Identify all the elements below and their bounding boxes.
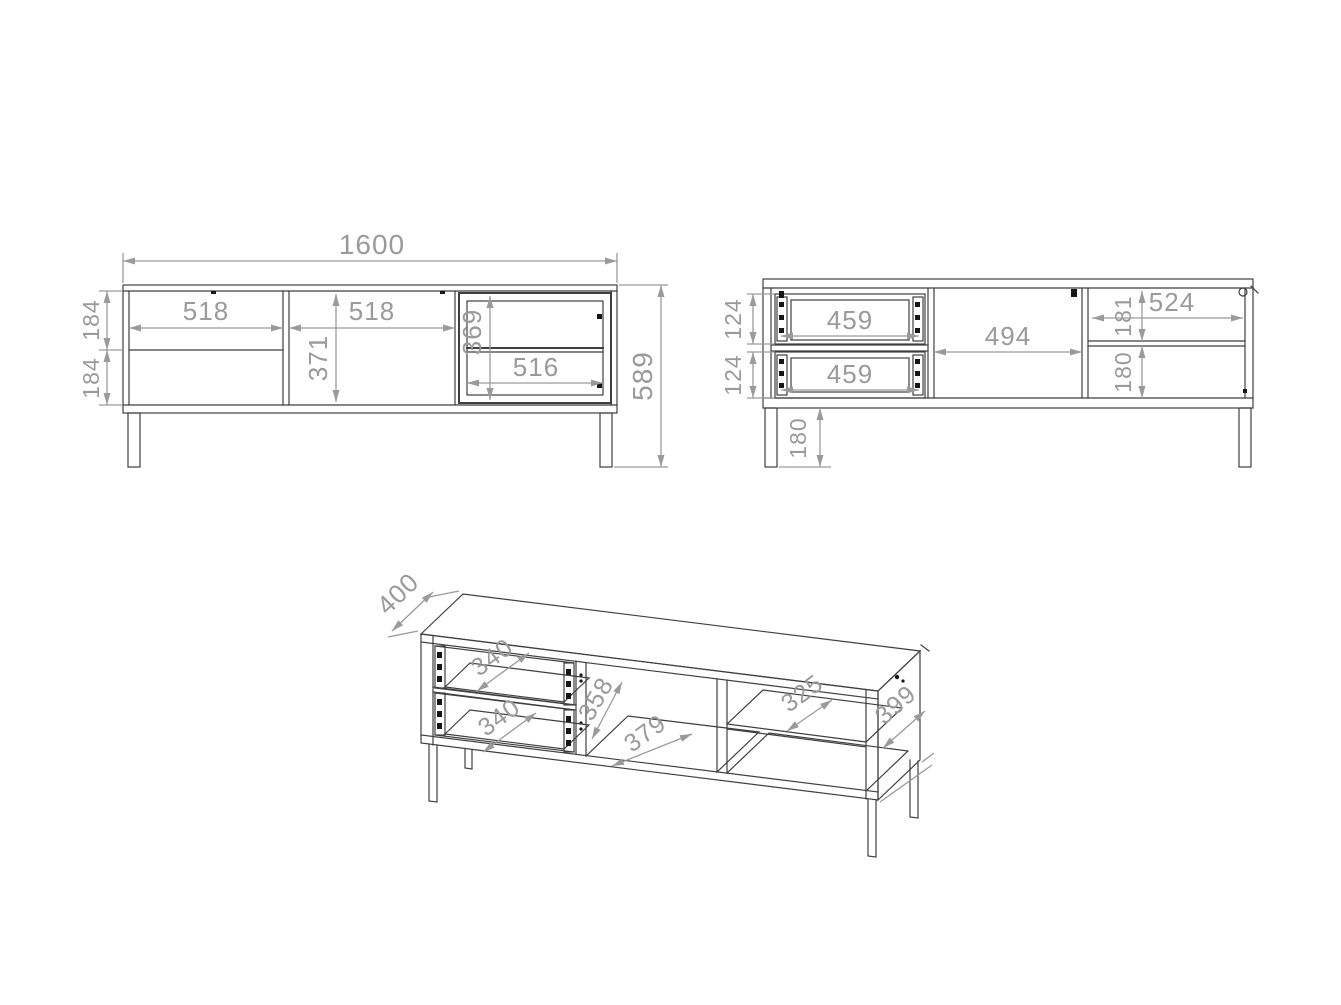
dim-back-leg-height: 180: [779, 408, 831, 467]
dim-back-right-bottom-height-label: 180: [1110, 351, 1136, 392]
iso-hinge-dot-1: [895, 675, 899, 679]
dim-iso-right-shelf-depth: 325: [776, 669, 832, 731]
iso-legs: [429, 744, 918, 857]
dim-front-total-height-label: 589: [627, 351, 658, 401]
front-hinge-mark-middle: [440, 291, 445, 294]
back-corner-hook: [1251, 286, 1258, 293]
dim-iso-right-shelf-depth-label: 325: [776, 669, 829, 718]
dim-front-total-width-label: 1600: [339, 229, 405, 260]
dim-front-glass-width-label: 516: [513, 352, 559, 382]
front-legs: [128, 413, 612, 467]
iso-back-left-leg: [465, 749, 472, 769]
front-left-leg: [128, 413, 140, 467]
back-catch-mark-left: [779, 291, 784, 298]
back-right-leg: [1239, 408, 1251, 467]
dim-back-top-drawer-width-label: 459: [827, 305, 873, 335]
dim-front-middle-door-height-label: 371: [303, 335, 333, 381]
dim-front-middle-section-width: 518: [289, 296, 455, 328]
front-glass-hinge-top: [597, 314, 602, 319]
back-left-leg: [765, 408, 777, 467]
back-view-dimensions: 459 459 124 124 494 524 181: [720, 287, 1243, 467]
dim-iso-middle-width: 379: [612, 709, 692, 766]
dim-back-top-drawer-width: 459: [781, 305, 919, 336]
dim-back-top-drawer-height-label: 124: [720, 298, 746, 339]
dim-front-total-width: 1600: [123, 229, 617, 283]
dim-front-glass-height-label: 369: [457, 309, 487, 355]
front-hinge-mark-left: [211, 291, 216, 294]
dim-front-left-section-width: 518: [129, 296, 283, 328]
front-right-leg: [600, 413, 612, 467]
dim-front-glass-height: 369: [457, 296, 490, 400]
dim-back-top-drawer-height: 124: [720, 294, 775, 344]
dim-front-left-top-height-label: 184: [78, 299, 104, 340]
dim-front-middle-section-width-label: 518: [349, 296, 395, 326]
dim-back-middle-width-label: 494: [985, 321, 1031, 351]
dim-iso-depth: 400: [371, 567, 459, 637]
dim-back-right-width-label: 524: [1149, 287, 1195, 317]
iso-right-compartment-floor: [727, 733, 908, 791]
front-glass-hinge-bottom: [597, 383, 602, 388]
dim-front-total-height: 589: [614, 285, 668, 467]
dim-iso-depth-label: 400: [371, 567, 425, 621]
dim-front-left-section-width-label: 518: [183, 296, 229, 326]
dim-back-bottom-drawer-width-label: 459: [827, 359, 873, 389]
back-cam-lock: [1239, 288, 1247, 296]
dim-iso-top-drawer-width: 340: [466, 633, 529, 691]
dim-back-right-top-height-label: 181: [1110, 295, 1136, 336]
dim-front-middle-door-height: 371: [303, 294, 336, 402]
dim-back-right-bottom-height: 180: [1110, 346, 1142, 398]
dim-back-bottom-drawer-height: 124: [720, 352, 775, 398]
iso-front-right-leg: [868, 799, 876, 857]
back-hinge-mark-middle: [1071, 289, 1077, 297]
iso-front-left-leg: [429, 744, 437, 802]
dim-front-left-bottom-height: 184: [78, 350, 107, 405]
furniture-dimension-drawing: 1600 589 518 518 371 369 516: [0, 0, 1341, 1005]
technical-drawing-canvas: 1600 589 518 518 371 369 516: [0, 0, 1341, 1005]
dim-back-bottom-drawer-width: 459: [781, 359, 919, 390]
iso-right-divider: [717, 679, 727, 773]
back-hinge-mark-bottom-right: [1243, 389, 1247, 393]
dim-back-right-top-height: 181: [1110, 291, 1142, 341]
dim-back-leg-height-label: 180: [785, 417, 811, 458]
dim-back-middle-width: 494: [934, 321, 1082, 352]
dim-iso-side-depth: 399: [870, 680, 934, 802]
dim-front-left-bottom-height-label: 184: [78, 357, 104, 398]
dim-back-bottom-drawer-height-label: 124: [720, 354, 746, 395]
iso-corner-hook: [921, 645, 929, 651]
dim-front-glass-width: 516: [467, 352, 603, 383]
back-legs: [765, 408, 1251, 467]
dim-iso-bottom-drawer-width-label: 340: [473, 693, 526, 742]
